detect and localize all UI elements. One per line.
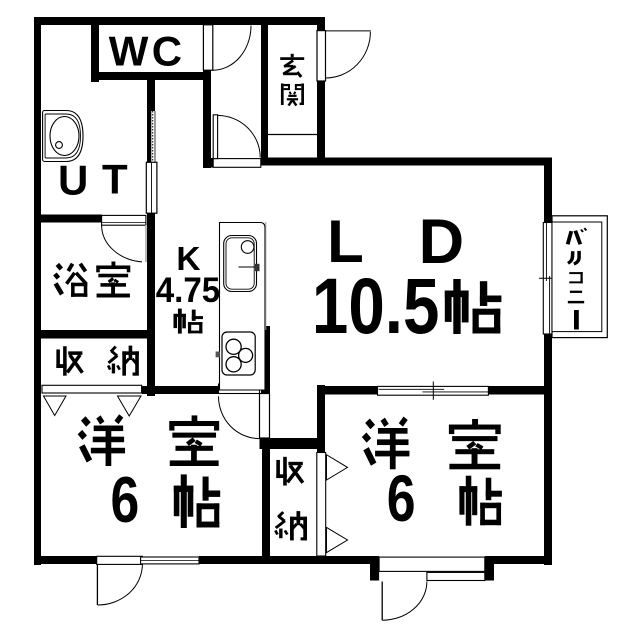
svg-text:C: C xyxy=(152,28,182,75)
svg-text:6: 6 xyxy=(387,462,416,535)
svg-text:6: 6 xyxy=(111,463,140,536)
svg-text:U: U xyxy=(58,156,88,203)
svg-text:W: W xyxy=(109,28,149,75)
svg-text:4.75: 4.75 xyxy=(156,270,221,310)
svg-text:10.5: 10.5 xyxy=(312,261,440,350)
svg-text:T: T xyxy=(102,156,128,203)
